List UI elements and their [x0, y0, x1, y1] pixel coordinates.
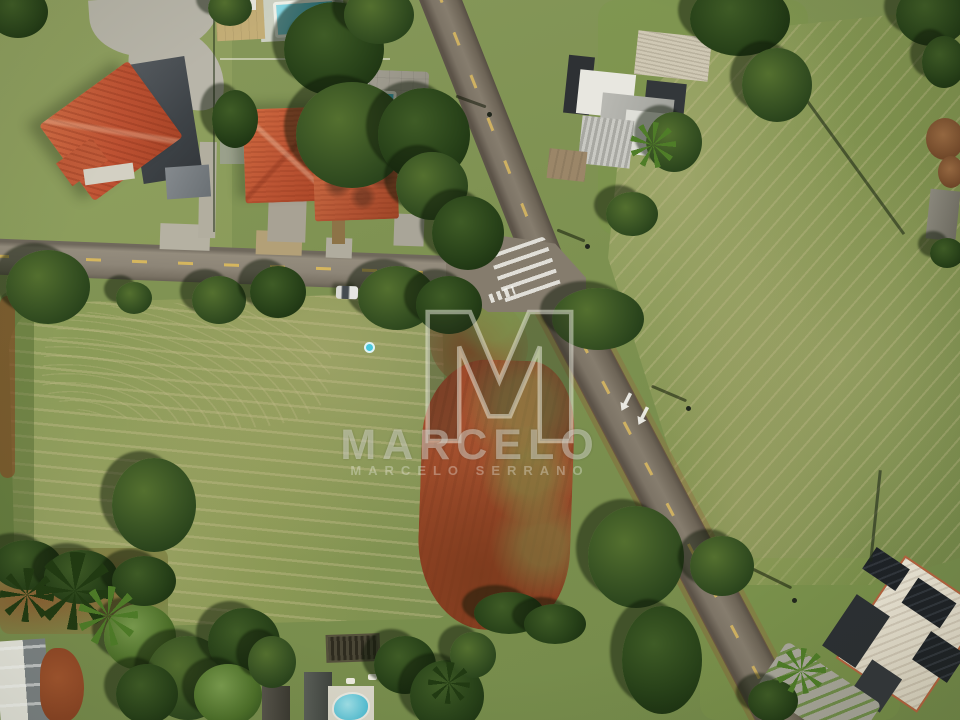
pool-float [364, 342, 375, 353]
house-a-annex-roof [165, 165, 211, 200]
aerial-photo: M MARCELO MARCELO SERRANO [0, 0, 960, 720]
tree [690, 536, 754, 596]
wood-pergola [326, 633, 381, 663]
tree [192, 276, 246, 324]
tree [112, 458, 196, 552]
dead-tree [926, 118, 960, 160]
shrub [212, 90, 258, 148]
parked-car [336, 286, 358, 300]
utility-pole [686, 406, 691, 411]
tree [248, 636, 296, 688]
tree [606, 192, 658, 236]
dirt-patch-house-e [40, 648, 84, 720]
palm-tree [78, 586, 138, 646]
palm-tree [0, 568, 54, 622]
swimming-pool-house-f [332, 692, 370, 720]
utility-pole [487, 112, 492, 117]
tree [622, 606, 702, 714]
left-edge-red-strip [0, 296, 15, 478]
tree [742, 48, 812, 122]
tree [922, 36, 960, 88]
utility-pole [585, 244, 590, 249]
pool-lounger [346, 678, 355, 684]
tree [116, 664, 178, 720]
utility-pole [792, 598, 797, 603]
tree [250, 266, 306, 318]
palm-tree [630, 122, 676, 168]
palm-tree [776, 648, 826, 694]
tree [588, 506, 684, 608]
tree [6, 250, 90, 324]
pole-shadow [557, 228, 586, 242]
tree [432, 196, 504, 270]
hedge [524, 604, 586, 644]
watermark-subtitle-text: MARCELO SERRANO [310, 463, 630, 478]
palm-tree [428, 662, 470, 704]
tree [930, 238, 960, 268]
house-d-driveway [547, 148, 588, 182]
shed-roof [925, 189, 960, 242]
house-f-dark-roof [262, 686, 290, 720]
dead-tree [938, 156, 960, 188]
driveway-pad [393, 213, 424, 246]
tree [116, 282, 152, 314]
